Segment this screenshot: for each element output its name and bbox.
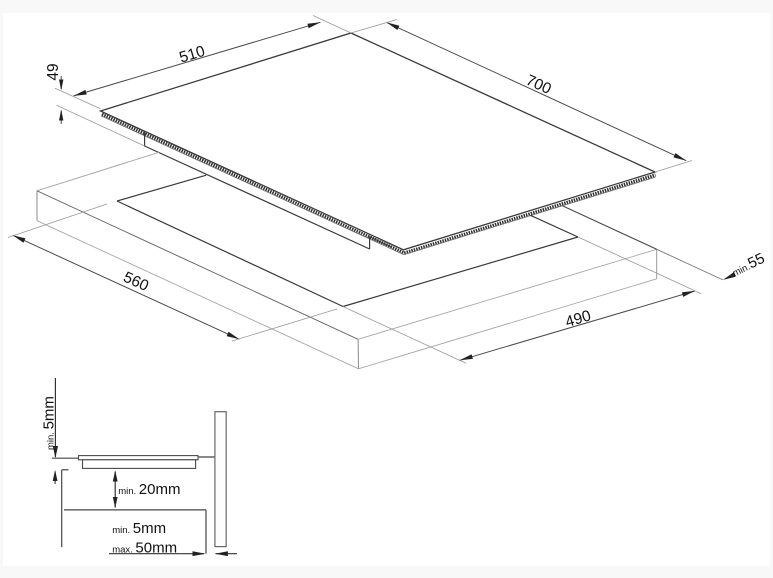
svg-text:49: 49 xyxy=(45,63,62,80)
